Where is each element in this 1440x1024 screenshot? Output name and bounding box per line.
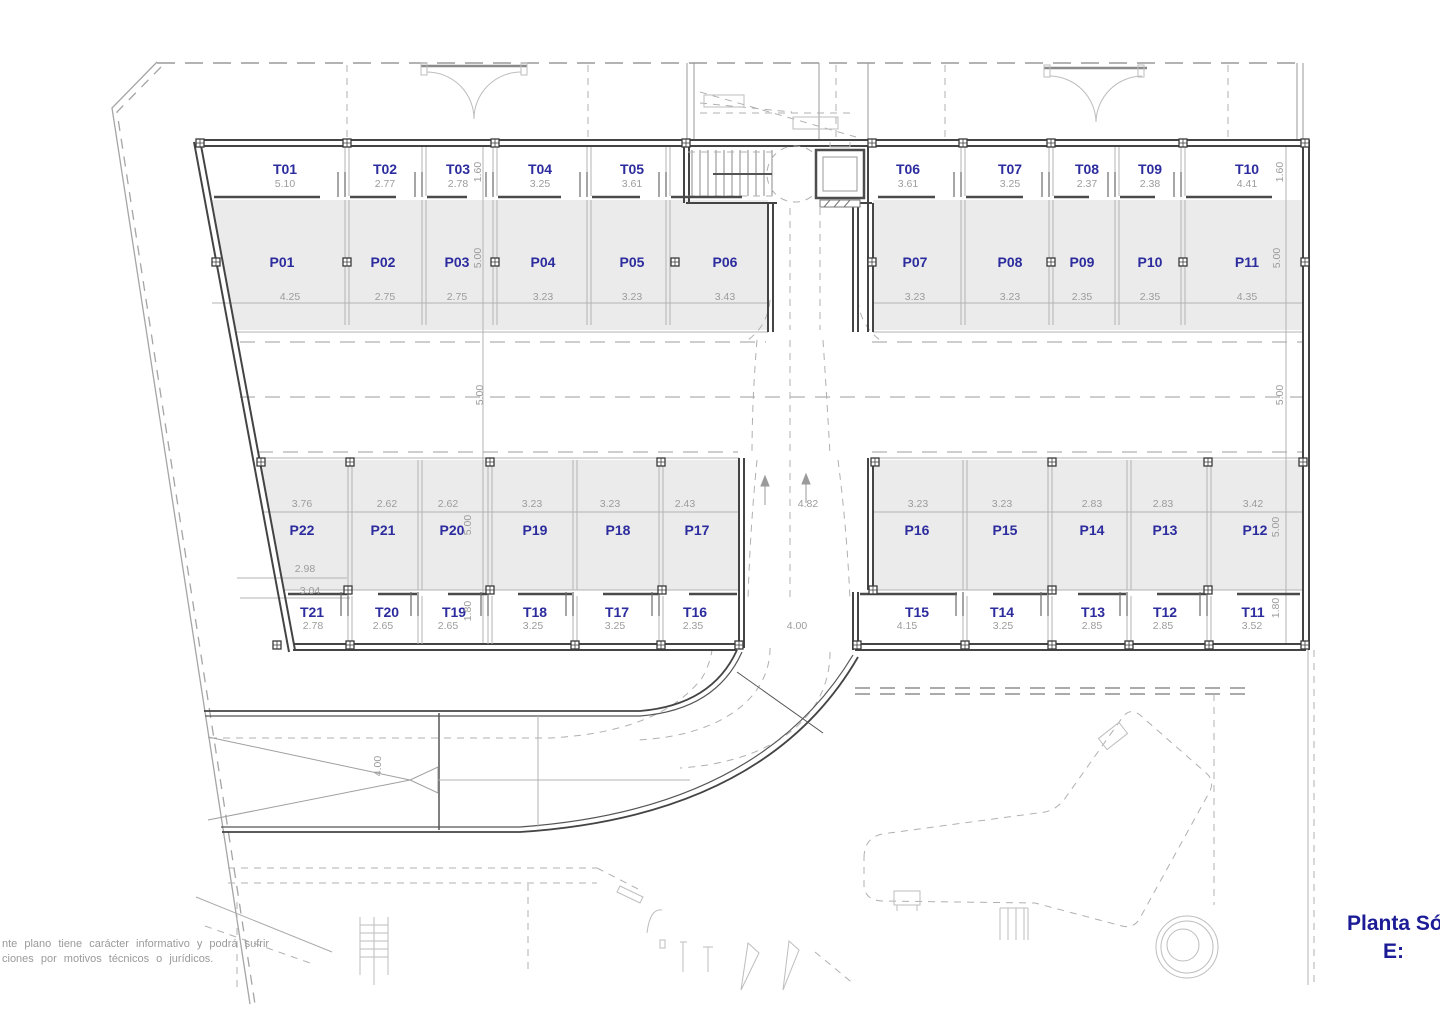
disclaimer-line2: ciones por motivos técnicos o jurídicos.: [2, 953, 213, 965]
parking-top-width: 3.23: [1000, 291, 1021, 303]
parking-bottom-label: P19: [523, 522, 548, 538]
parking-top-width: 2.35: [1072, 291, 1093, 303]
storage-bottom-width: 3.52: [1242, 620, 1263, 632]
bottom-left-details: [196, 868, 855, 990]
parking-bottom-label: P20: [440, 522, 465, 538]
elevator-icon: [816, 142, 864, 207]
floor-plan-canvas: T015.10T022.77T032.78T043.25T053.61T063.…: [0, 0, 1440, 1024]
storage-bottom-label: T15: [905, 604, 929, 620]
storage-bottom-label: T18: [523, 604, 547, 620]
pool-outline: [855, 688, 1245, 978]
storage-top-label: T02: [373, 161, 397, 177]
door-jamb-icon: [1200, 592, 1207, 616]
plan-title: Planta Só: [1347, 912, 1440, 935]
parking-bottom-width: 2.62: [438, 498, 459, 510]
parking-top-label: P04: [531, 254, 556, 270]
storage-top-width: 5.10: [275, 178, 296, 190]
storage-top-width: 2.78: [448, 178, 469, 190]
parking-top-width: 3.23: [622, 291, 643, 303]
door-jamb-icon: [486, 172, 493, 197]
storage-bottom-width: 3.25: [605, 620, 626, 632]
parking-top-width: 2.75: [375, 291, 396, 303]
parking-bottom-label: P12: [1243, 522, 1268, 538]
parking-top-width: 3.43: [715, 291, 736, 303]
door-jamb-icon: [1041, 592, 1048, 616]
storage-bottom-width: 2.65: [438, 620, 459, 632]
door-jamb-icon: [956, 592, 963, 616]
door-jamb-icon: [1042, 172, 1049, 197]
storage-top-width: 2.38: [1140, 178, 1161, 190]
storage-top-label: T03: [446, 161, 470, 177]
storage-bottom-label: T20: [375, 604, 399, 620]
storage-bottom-label: T12: [1153, 604, 1177, 620]
storage-top-label: T05: [620, 161, 644, 177]
ramp-and-curves: [204, 650, 858, 832]
storage-top-label: T06: [896, 161, 920, 177]
dimension-aisle-junction: 4.82: [798, 498, 819, 510]
parking-top-width: 2.75: [447, 291, 468, 303]
dimension-right-chain: 5.00: [1270, 517, 1282, 538]
storage-top-label: T01: [273, 161, 297, 177]
parking-top-label: P07: [903, 254, 928, 270]
parking-top-width: 2.35: [1140, 291, 1161, 303]
pool-steps-icon: [1000, 908, 1028, 940]
dimension-drive-exit: 4.00: [787, 620, 808, 632]
parking-bottom-label: P22: [290, 522, 315, 538]
storage-bottom-width: 2.78: [303, 620, 324, 632]
parking-bottom-label: P13: [1153, 522, 1178, 538]
dimension-p22-inner: 2.98: [295, 563, 316, 575]
spa-circles-icon: [1156, 916, 1218, 978]
upper-floor-outline: [347, 63, 1303, 140]
parking-bottom-label: P16: [905, 522, 930, 538]
floor-plan-sheet: T015.10T022.77T032.78T043.25T053.61T063.…: [0, 0, 1440, 1024]
storage-bottom-label: T11: [1241, 604, 1265, 620]
door-jamb-icon: [1108, 172, 1115, 197]
parking-bottom-width: 2.62: [377, 498, 398, 510]
dimension-left-chain: 5.00: [474, 385, 486, 406]
storage-bottom-width: 3.25: [993, 620, 1014, 632]
parking-bottom-label: P18: [606, 522, 631, 538]
storage-bottom-width: 2.85: [1153, 620, 1174, 632]
double-door-icon: [1044, 65, 1147, 122]
dimension-right-chain: 1.60: [1274, 162, 1286, 183]
ramp-above-icon: [700, 92, 856, 137]
dimension-left-chain: 5.00: [462, 515, 474, 536]
parking-bottom-width: 2.43: [675, 498, 696, 510]
dimension-right-chain: 5.00: [1271, 248, 1283, 269]
storage-top-label: T04: [528, 161, 552, 177]
storage-top-width: 3.61: [898, 178, 919, 190]
flag-shapes-icon: [741, 941, 855, 990]
door-jamb-icon: [415, 172, 422, 197]
door-jamb-icon: [1120, 592, 1127, 616]
dimension-ramp-width: 4.00: [372, 756, 384, 777]
parking-top-width: 4.35: [1237, 291, 1258, 303]
turning-circle-icon: [767, 146, 823, 202]
door-jamb-icon: [411, 592, 418, 616]
storage-bottom-label: T17: [605, 604, 629, 620]
dimension-right-chain: 1.80: [1270, 598, 1282, 619]
storage-bottom-width: 2.65: [373, 620, 394, 632]
door-jamb-icon: [1174, 172, 1181, 197]
door-jamb-icon: [652, 592, 659, 616]
parking-top-width: 3.23: [533, 291, 554, 303]
ramp-slope-arrow: [208, 737, 438, 820]
storage-bottom-width: 2.85: [1082, 620, 1103, 632]
storage-top-width: 4.41: [1237, 178, 1258, 190]
storage-top-label: T08: [1075, 161, 1099, 177]
parking-bottom-width: 3.23: [600, 498, 621, 510]
parking-bottom-width: 2.83: [1153, 498, 1174, 510]
dimension-left-chain: 1.80: [462, 601, 474, 622]
door-jamb-icon: [566, 592, 573, 616]
dimension-left-chain: 5.00: [472, 248, 484, 269]
parking-top-label: P10: [1138, 254, 1163, 270]
door-jamb-icon: [659, 172, 666, 197]
dimension-left-chain: 1.60: [472, 162, 484, 183]
parking-top-label: P05: [620, 254, 645, 270]
storage-top-width: 2.37: [1077, 178, 1098, 190]
parking-top-label: P11: [1235, 254, 1259, 270]
storage-top-width: 3.61: [622, 178, 643, 190]
parking-top-width: 4.25: [280, 291, 301, 303]
parking-bottom-label: P15: [993, 522, 1018, 538]
parking-bottom-label: P14: [1080, 522, 1105, 538]
dimension-t21-outer: 3.04: [300, 585, 321, 597]
door-jamb-icon: [341, 592, 348, 616]
plan-scale: E:: [1383, 940, 1404, 963]
storage-top-width: 3.25: [1000, 178, 1021, 190]
parking-top-label: P02: [371, 254, 396, 270]
parking-bottom-width: 3.23: [992, 498, 1013, 510]
storage-bottom-label: T13: [1081, 604, 1105, 620]
parking-bottom-width: 2.83: [1082, 498, 1103, 510]
door-jamb-icon: [954, 172, 961, 197]
storage-bottom-label: T21: [300, 604, 324, 620]
door-jamb-icon: [580, 172, 587, 197]
parking-bottom-width: 3.23: [522, 498, 543, 510]
parking-bottom-label: P21: [371, 522, 396, 538]
storage-bottom-label: T14: [990, 604, 1014, 620]
storage-top-label: T07: [998, 161, 1022, 177]
parking-top-label: P08: [998, 254, 1023, 270]
parking-bottom-width: 3.23: [908, 498, 929, 510]
storage-top-label: T10: [1235, 161, 1259, 177]
storage-bottom-label: T16: [683, 604, 707, 620]
storage-bottom-width: 3.25: [523, 620, 544, 632]
storage-top-width: 3.25: [530, 178, 551, 190]
storage-top-label: T09: [1138, 161, 1162, 177]
parking-top-label: P01: [270, 254, 295, 270]
parking-top-label: P09: [1070, 254, 1095, 270]
parking-top-width: 3.23: [905, 291, 926, 303]
storage-top-width: 2.77: [375, 178, 396, 190]
door-jamb-icon: [481, 592, 488, 616]
parking-bottom-width: 3.42: [1243, 498, 1264, 510]
storage-bottom-width: 4.15: [897, 620, 918, 632]
stair-down-icon: [360, 917, 388, 985]
parking-top-label: P03: [445, 254, 470, 270]
disclaimer-line1: nte plano tiene carácter informativo y p…: [2, 938, 269, 950]
staircase-icon: [688, 146, 823, 202]
double-door-icon: [421, 63, 527, 119]
door-jamb-icon: [338, 172, 345, 197]
parking-top-label: P06: [713, 254, 738, 270]
parking-bottom-label: P17: [685, 522, 710, 538]
dimension-right-chain: 5.00: [1274, 385, 1286, 406]
parking-bottom-width: 3.76: [292, 498, 313, 510]
storage-bottom-width: 2.35: [683, 620, 704, 632]
